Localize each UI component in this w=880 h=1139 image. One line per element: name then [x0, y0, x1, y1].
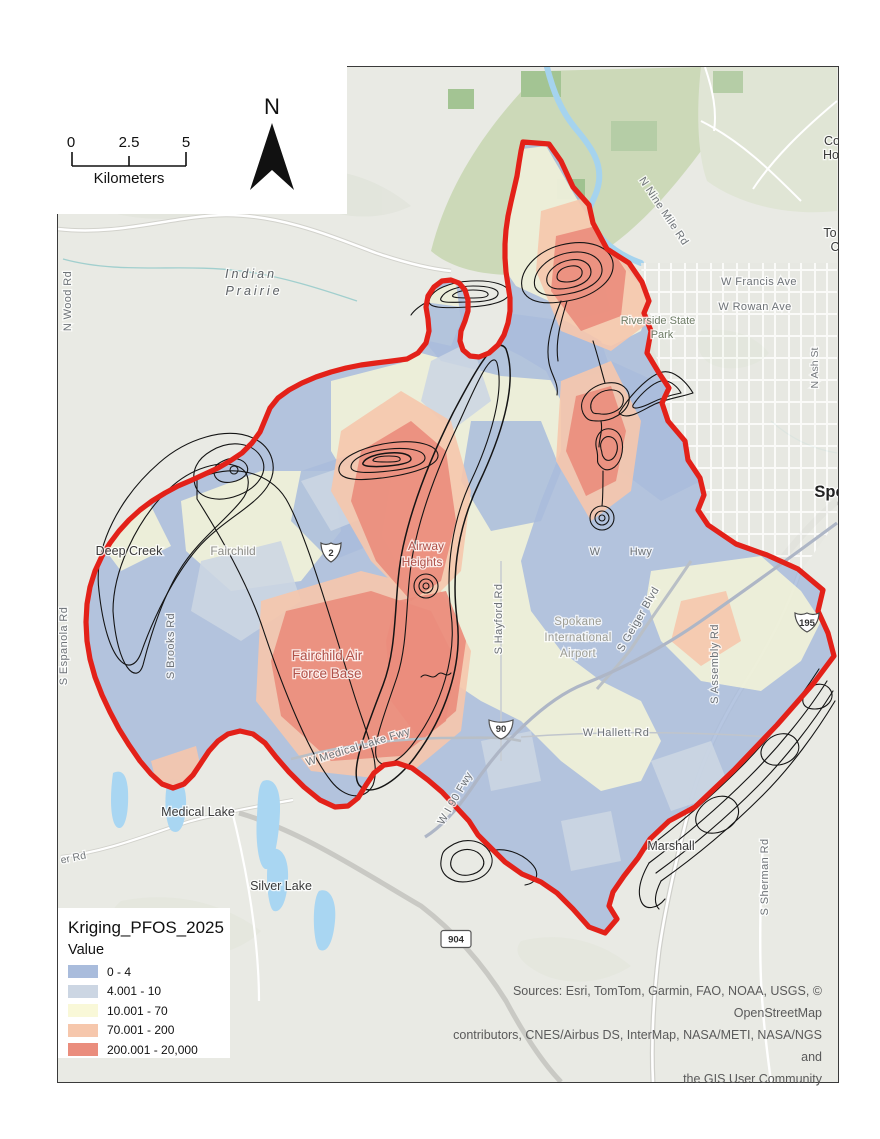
- label-fairchild: Fairchild: [210, 544, 255, 558]
- attribution-line: contributors, CNES/Airbus DS, InterMap, …: [432, 1024, 822, 1068]
- us-2-shield-number: 2: [328, 548, 333, 559]
- attribution-line: Sources: Esri, TomTom, Garmin, FAO, NOAA…: [432, 980, 822, 1024]
- sr-904-shield-number: 904: [448, 935, 465, 946]
- label-riverside-2: Park: [651, 329, 674, 341]
- label-s-hayford-rd: S Hayford Rd: [493, 584, 505, 655]
- legend-title: Kriging_PFOS_2025: [68, 918, 230, 938]
- label-indian-prairie-1: Indian: [225, 267, 277, 281]
- legend-row: 70.001 - 200: [68, 1021, 230, 1041]
- label-silver-lake: Silver Lake: [250, 879, 312, 893]
- scalebar-panel: 0 2.5 5 Kilometers N: [57, 66, 347, 214]
- scalebar-graphic: 0 2.5 5 Kilometers N: [57, 66, 347, 214]
- scalebar-tick-0: 0: [67, 134, 75, 151]
- scalebar-unit: Kilometers: [94, 170, 165, 187]
- legend-swatch-class2: [68, 985, 98, 998]
- label-marshall: Marshall: [647, 839, 694, 853]
- scalebar-line: [72, 152, 186, 166]
- legend-label-class5: 200.001 - 20,000: [107, 1043, 198, 1057]
- label-airway-heights-1: Airway: [408, 539, 444, 553]
- label-w-hwy-w: W: [590, 546, 601, 558]
- attribution-line: the GIS User Community: [432, 1068, 822, 1090]
- legend-swatch-class5: [68, 1043, 98, 1056]
- label-airport-3: Airport: [560, 648, 596, 660]
- label-co: Co: [824, 134, 838, 148]
- legend-label-class1: 0 - 4: [107, 965, 131, 979]
- legend-row: 200.001 - 20,000: [68, 1040, 230, 1060]
- label-w-francis-ave: W Francis Ave: [721, 276, 797, 288]
- label-fafb-2: Force Base: [292, 666, 361, 681]
- sr-904-shield: 904: [441, 931, 471, 948]
- label-deep-creek: Deep Creek: [96, 544, 163, 558]
- legend-swatch-class3: [68, 1004, 98, 1017]
- label-w-hwy-hwy: Hwy: [630, 546, 653, 558]
- legend-row: 4.001 - 10: [68, 982, 230, 1002]
- label-s-brooks-rd: S Brooks Rd: [165, 613, 177, 679]
- north-arrow-icon: [250, 123, 294, 190]
- label-s-assembly-rd: S Assembly Rd: [709, 624, 721, 704]
- label-fafb-1: Fairchild Air: [292, 648, 363, 663]
- label-s-sherman-rd: S Sherman Rd: [759, 839, 771, 916]
- legend-row: 10.001 - 70: [68, 1001, 230, 1021]
- label-airport-1: Spokane: [554, 616, 602, 628]
- legend-swatch-class1: [68, 965, 98, 978]
- label-w-hallett-rd: W Hallett Rd: [583, 727, 650, 739]
- label-airport-2: International: [544, 632, 611, 644]
- legend-label-class3: 10.001 - 70: [107, 1004, 168, 1018]
- label-s-espanola-rd: S Espanola Rd: [58, 607, 70, 686]
- label-n-wood-rd: N Wood Rd: [62, 271, 74, 331]
- legend-field-label: Value: [68, 942, 230, 958]
- legend-row: 0 - 4: [68, 962, 230, 982]
- label-riverside-1: Riverside State: [621, 315, 696, 327]
- attribution-text: Sources: Esri, TomTom, Garmin, FAO, NOAA…: [432, 980, 822, 1090]
- map-export-page: 2 90 195 904 IndianPrairieN Wood RdN Nin…: [0, 0, 880, 1139]
- label-n-ash-st: N Ash St: [809, 347, 821, 388]
- north-arrow-label: N: [264, 94, 280, 119]
- legend-panel: Kriging_PFOS_2025 Value 0 - 4 4.001 - 10…: [58, 908, 230, 1058]
- legend-swatch-class4: [68, 1024, 98, 1037]
- label-medical-lake: Medical Lake: [161, 805, 235, 819]
- label-c: C: [830, 240, 838, 254]
- label-w-rowan-ave: W Rowan Ave: [718, 301, 791, 313]
- us-195-shield-number: 195: [799, 618, 816, 629]
- scalebar-tick-2: 5: [182, 134, 190, 151]
- label-indian-prairie-2: Prairie: [225, 284, 282, 298]
- legend-label-class4: 70.001 - 200: [107, 1023, 174, 1037]
- label-spokane-partial: Spo: [814, 483, 838, 501]
- scalebar-tick-1: 2.5: [119, 134, 140, 151]
- i-90-shield-number: 90: [496, 724, 507, 735]
- label-airway-heights-2: Heights: [402, 555, 443, 569]
- legend-label-class2: 4.001 - 10: [107, 984, 161, 998]
- label-ho: Ho: [823, 148, 838, 162]
- label-to: To: [823, 226, 836, 240]
